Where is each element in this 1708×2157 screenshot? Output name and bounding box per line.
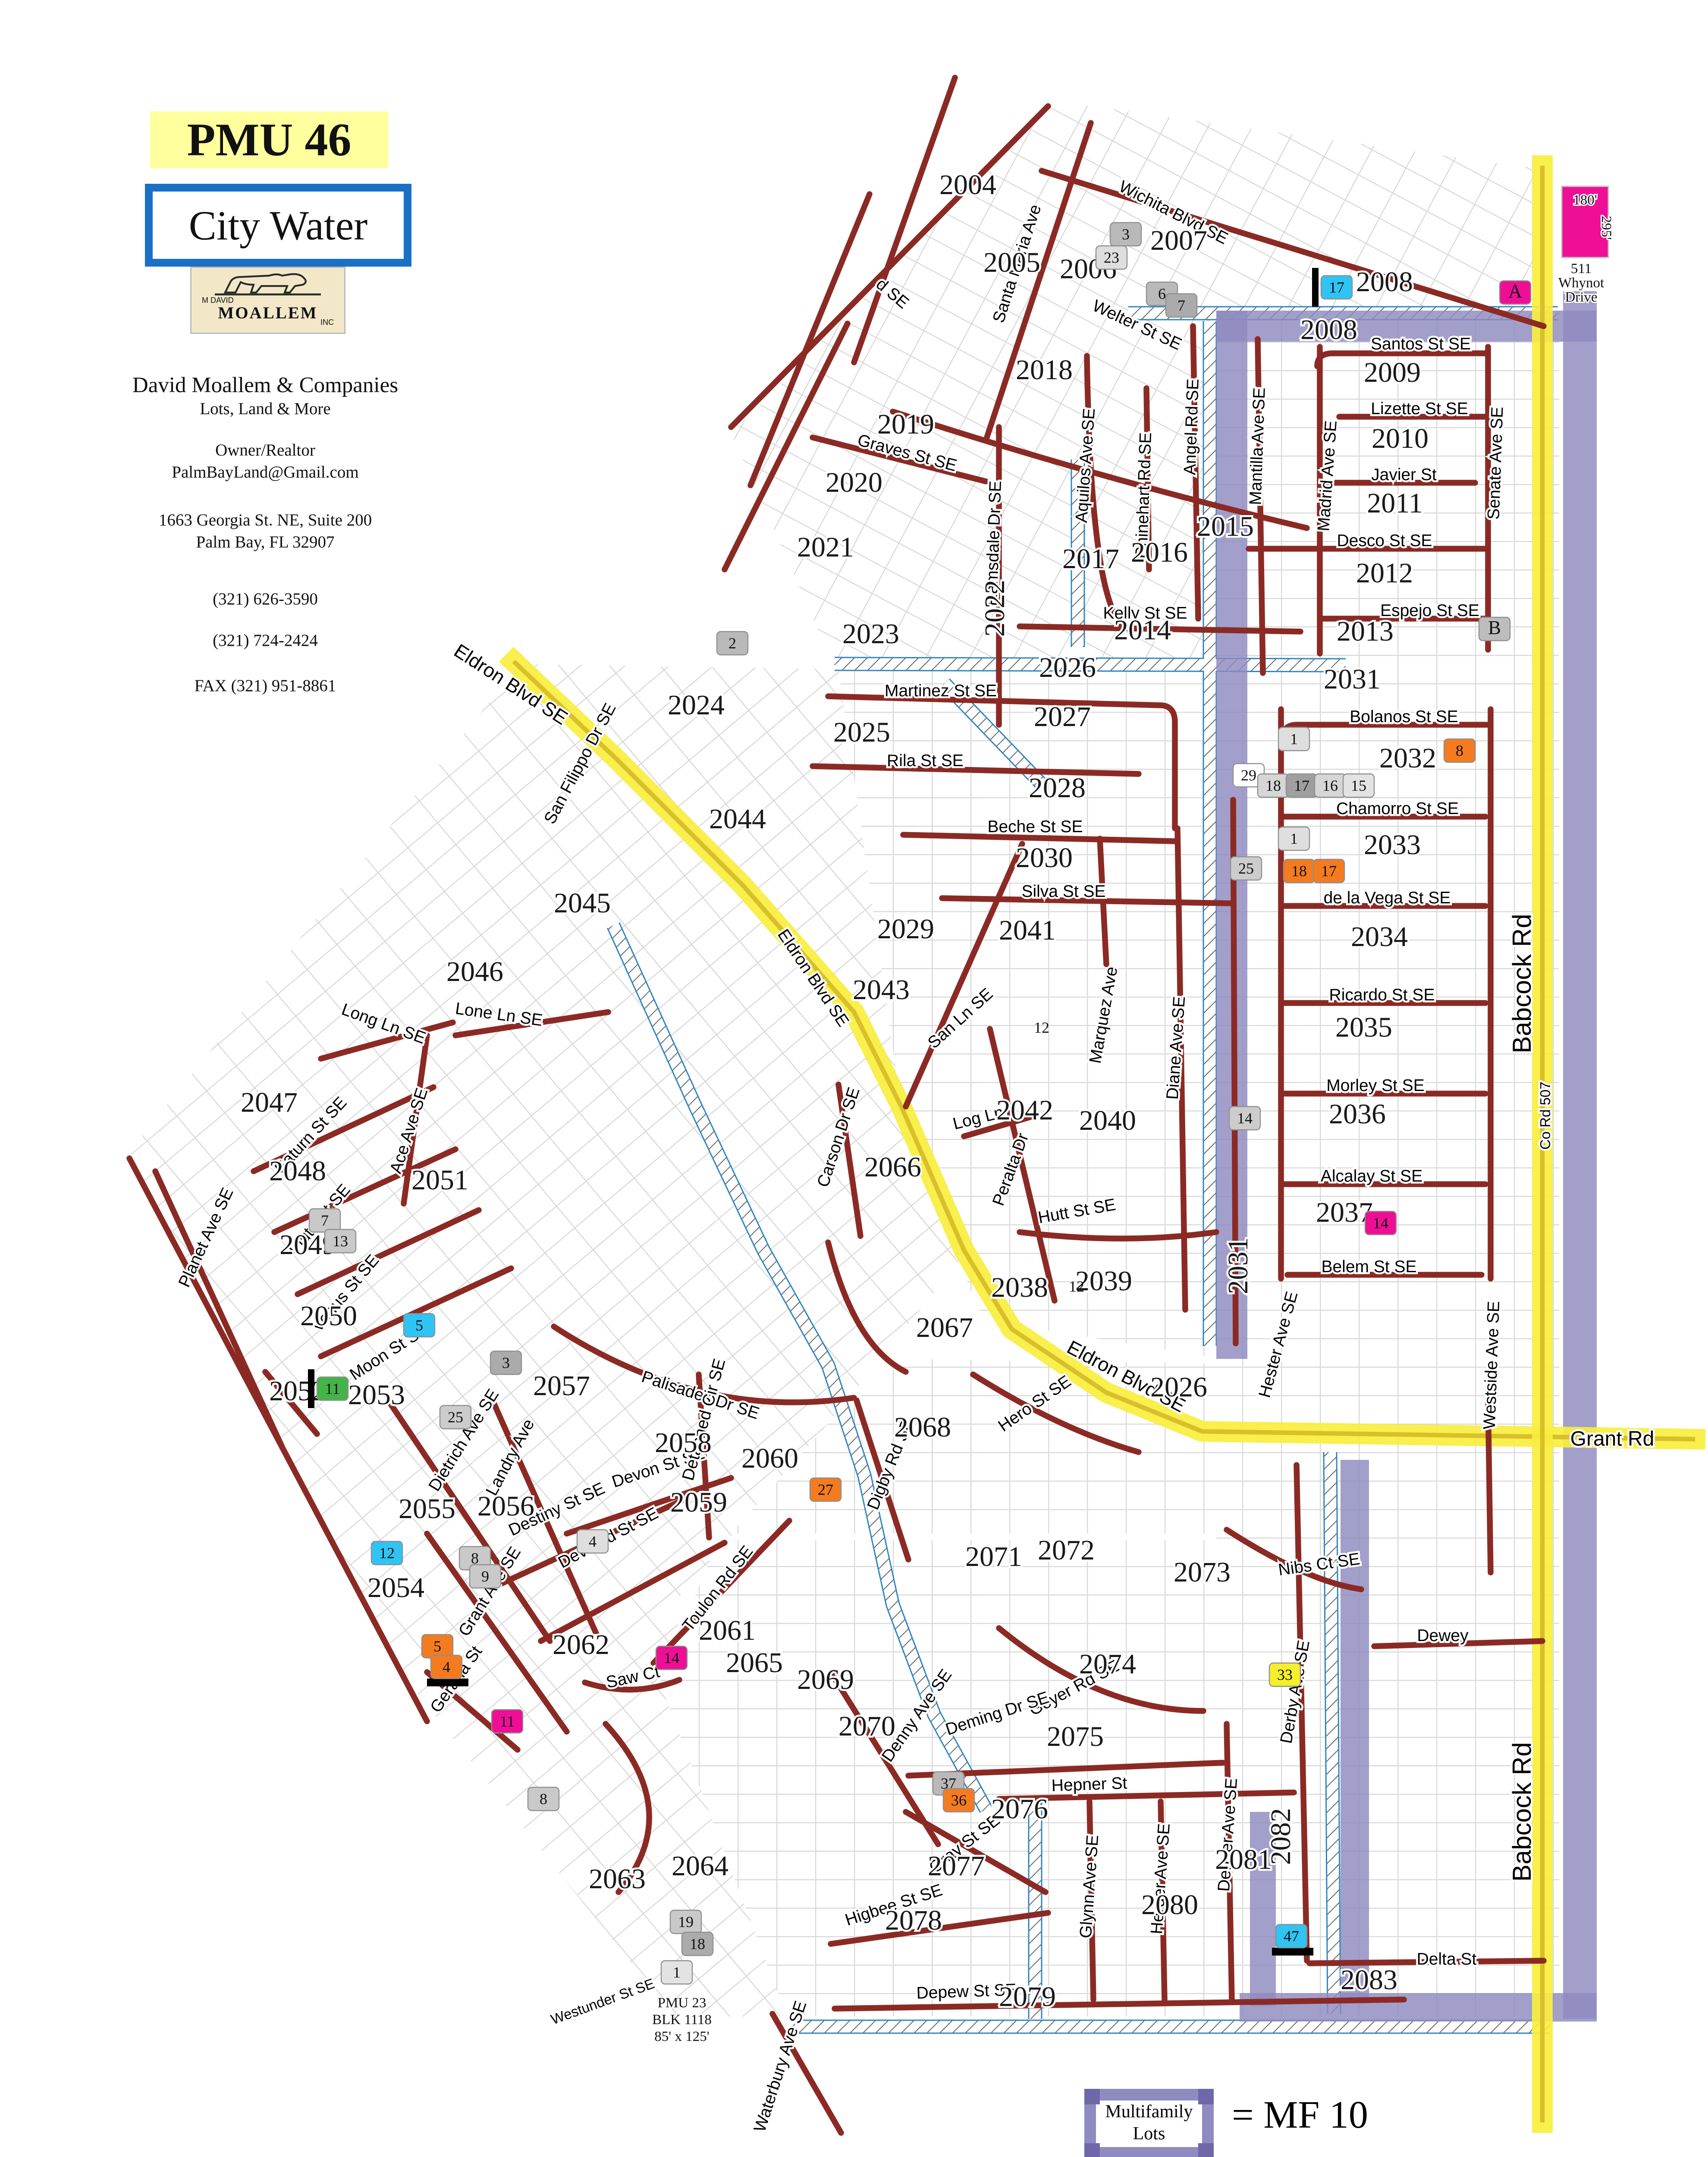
- section-number: 2067: [916, 1312, 973, 1343]
- svg-text:7: 7: [321, 1212, 329, 1229]
- svg-text:8: 8: [1456, 742, 1463, 759]
- section-number: 2031: [1222, 1237, 1254, 1294]
- svg-text:15: 15: [1351, 777, 1366, 794]
- lot-marker: 8: [1444, 739, 1475, 762]
- lot-marker: 14: [1365, 1211, 1396, 1235]
- svg-text:29: 29: [1241, 767, 1256, 784]
- svg-text:27: 27: [818, 1481, 833, 1498]
- svg-text:1: 1: [1290, 730, 1298, 748]
- section-number: 2063: [589, 1863, 646, 1895]
- section-number: 2043: [853, 974, 910, 1006]
- section-number: 2076: [991, 1793, 1048, 1825]
- lot-marker: 27: [810, 1478, 841, 1501]
- section-number: 2030: [1016, 842, 1073, 874]
- section-number: 2041: [999, 915, 1056, 946]
- svg-text:14: 14: [1237, 1110, 1253, 1127]
- logo-brand: MOALLEM: [192, 305, 344, 320]
- svg-text:3: 3: [502, 1354, 510, 1371]
- lot-marker: 7: [309, 1209, 340, 1232]
- section-number: 2027: [1034, 701, 1091, 733]
- section-number: 2078: [885, 1905, 942, 1936]
- section-number: 2026: [1039, 652, 1096, 683]
- lot-marker: 15: [1343, 774, 1374, 797]
- street-label: Alcalay St SE: [1321, 1167, 1422, 1185]
- section-number: 2005: [983, 247, 1040, 278]
- section-number: 2058: [655, 1427, 712, 1459]
- section-number: 2054: [367, 1572, 424, 1604]
- street-label: Co Rd 507: [1537, 1082, 1553, 1150]
- street-label: Grant Rd: [1570, 1428, 1655, 1450]
- legend-swatch-line2: Lots: [1096, 2124, 1202, 2146]
- lot-marker: 18: [1258, 774, 1289, 797]
- lot-marker: 36: [943, 1789, 974, 1812]
- section-number: 2013: [1337, 616, 1394, 647]
- section-number: 2055: [399, 1493, 455, 1525]
- street-label: Beche St SE: [987, 818, 1083, 836]
- svg-text:4: 4: [589, 1533, 597, 1550]
- street-label: Rila St SE: [887, 751, 964, 770]
- svg-text:18: 18: [1291, 862, 1307, 880]
- section-number: 2022: [979, 580, 1011, 637]
- svg-text:8: 8: [540, 1790, 547, 1808]
- section-number: 2072: [1038, 1534, 1095, 1566]
- section-number: 2064: [672, 1850, 728, 1882]
- section-number: 2032: [1379, 742, 1436, 774]
- section-number: 2062: [553, 1629, 609, 1660]
- section-number: 2021: [797, 531, 854, 563]
- lot-marker: 33: [1269, 1663, 1300, 1686]
- section-number: 2019: [877, 409, 934, 440]
- svg-text:11: 11: [325, 1380, 340, 1397]
- svg-text:17: 17: [1294, 777, 1309, 794]
- section-number: 2051: [411, 1164, 468, 1196]
- svg-text:9: 9: [481, 1568, 489, 1585]
- section-number: 2012: [1356, 557, 1413, 589]
- fax-number: FAX (321) 951-8861: [78, 676, 453, 696]
- pmu-title: PMU 46: [150, 111, 388, 168]
- section-number: 2008: [1300, 314, 1357, 346]
- svg-text:B: B: [1488, 617, 1501, 638]
- lot-marker: 25: [1231, 857, 1262, 880]
- lot-marker: 4: [427, 1655, 468, 1686]
- legend-mf10: = MF 10: [1232, 2094, 1368, 2138]
- section-number: 2080: [1141, 1889, 1198, 1921]
- section-number: 2038: [991, 1272, 1048, 1303]
- lot-marker: 18: [1284, 859, 1315, 883]
- svg-text:13: 13: [333, 1233, 348, 1250]
- section-number: 2028: [1029, 772, 1086, 804]
- section-number: 2046: [446, 956, 503, 987]
- lot-marker: 47: [1272, 1924, 1313, 1956]
- section-number: 2068: [894, 1412, 951, 1443]
- svg-text:25: 25: [1238, 860, 1254, 877]
- street-label: Hepner St: [1051, 1774, 1127, 1795]
- lot-marker: 17: [1313, 859, 1344, 883]
- street-label: Senate Ave SE: [1484, 406, 1507, 520]
- street-label: Dewey: [1417, 1626, 1469, 1645]
- section-number: 2004: [939, 169, 996, 201]
- section-number: 2065: [726, 1647, 783, 1679]
- svg-text:18: 18: [1265, 777, 1281, 794]
- street-label: Ricardo St SE: [1329, 986, 1435, 1004]
- svg-text:11: 11: [500, 1713, 515, 1730]
- svg-text:36: 36: [951, 1792, 967, 1809]
- lion-logo-icon: [210, 269, 326, 298]
- svg-text:16: 16: [1322, 777, 1338, 794]
- svg-text:47: 47: [1284, 1927, 1299, 1945]
- lot-marker: 12: [371, 1541, 402, 1565]
- lot-marker: A: [1500, 280, 1531, 304]
- section-number: 2070: [838, 1711, 895, 1742]
- section-number: 2018: [1016, 354, 1073, 386]
- map-note: 180': [1573, 192, 1597, 208]
- lot-marker: 13: [325, 1229, 356, 1253]
- section-number: 2077: [928, 1850, 985, 1882]
- svg-text:14: 14: [664, 1649, 679, 1666]
- section-number: 2047: [241, 1087, 298, 1118]
- street-label: Belem St SE: [1321, 1258, 1416, 1276]
- section-number: 2075: [1047, 1721, 1104, 1752]
- legend-swatch-line1: Multifamily: [1096, 2102, 1202, 2124]
- svg-text:1: 1: [1290, 830, 1298, 847]
- moallem-logo: M DAVID MOALLEM INC: [190, 267, 345, 334]
- street-label: Silva St SE: [1021, 882, 1105, 901]
- section-number: 2011: [1367, 487, 1423, 519]
- lot-marker: 7: [1166, 294, 1197, 317]
- lot-marker: 5: [422, 1635, 453, 1658]
- lot-marker: 1: [1278, 827, 1309, 850]
- svg-text:18: 18: [690, 1935, 705, 1953]
- section-number: 2031: [1324, 663, 1381, 695]
- section-number: 2057: [533, 1370, 590, 1402]
- section-number: 2083: [1341, 1964, 1397, 1996]
- section-number: 2040: [1079, 1105, 1136, 1136]
- section-number: 2034: [1351, 921, 1408, 953]
- svg-text:17: 17: [1329, 279, 1344, 296]
- section-number: 2014: [1114, 614, 1171, 646]
- lot-marker: 16: [1315, 774, 1346, 797]
- svg-text:14: 14: [1373, 1214, 1388, 1232]
- street-label: Delta St: [1417, 1950, 1477, 1968]
- section-number: 2071: [965, 1541, 1022, 1572]
- section-number: 2081: [1215, 1844, 1272, 1875]
- street-label: Angel Rd SE: [1181, 378, 1203, 475]
- section-number: 2016: [1131, 537, 1188, 568]
- svg-text:7: 7: [1177, 297, 1185, 314]
- section-number: 2036: [1329, 1098, 1386, 1130]
- address-line1: 1663 Georgia St. NE, Suite 200: [78, 510, 453, 531]
- section-number: 2061: [699, 1615, 756, 1646]
- section-number: 2050: [300, 1300, 357, 1332]
- company-tagline: Lots, Land & More: [78, 399, 453, 419]
- section-number: 2079: [999, 1981, 1056, 2012]
- lot-marker: 17: [1286, 774, 1317, 797]
- section-number: 2048: [269, 1155, 326, 1187]
- lot-marker: 14: [1229, 1107, 1260, 1130]
- map-note: 511: [1571, 261, 1592, 277]
- section-number: 2056: [477, 1490, 534, 1522]
- lot-marker: 3: [1110, 223, 1141, 246]
- svg-text:A: A: [1508, 280, 1523, 302]
- section-number: 2009: [1364, 357, 1421, 388]
- lot-marker: 1: [661, 1961, 692, 1984]
- svg-text:12: 12: [1034, 1019, 1049, 1036]
- street-label: Babcock Rd: [1507, 1742, 1536, 1882]
- section-number: 2042: [996, 1094, 1053, 1126]
- street-label: Westunder St SE: [549, 1975, 656, 2028]
- street-label: Morley St SE: [1326, 1076, 1425, 1095]
- lot-marker: 1: [1278, 727, 1309, 751]
- city-water-badge: City Water: [145, 184, 411, 267]
- section-number: 2060: [741, 1443, 798, 1474]
- map-note: PMU 23: [658, 1995, 706, 2011]
- svg-text:3: 3: [1122, 226, 1130, 243]
- address-line2: Palm Bay, FL 32907: [78, 532, 453, 553]
- section-number: 2073: [1174, 1556, 1231, 1588]
- phone-primary: (321) 626-3590: [78, 589, 453, 610]
- section-number: 2074: [1079, 1648, 1136, 1680]
- map-note: 85' x 125': [654, 2029, 709, 2044]
- svg-text:12: 12: [1069, 1278, 1084, 1295]
- map-note: BLK 1118: [652, 2012, 712, 2028]
- street-label: Chamorro St SE: [1336, 799, 1459, 818]
- lot-marker: 4: [577, 1530, 608, 1553]
- street-label: Lizette St SE: [1371, 399, 1468, 418]
- lot-marker: 12: [1069, 1278, 1084, 1295]
- svg-text:1: 1: [673, 1964, 681, 1981]
- street-label: de la Vega St SE: [1324, 889, 1451, 907]
- svg-text:2: 2: [728, 635, 736, 652]
- street-label: Bolanos St SE: [1350, 707, 1458, 726]
- svg-text:19: 19: [678, 1913, 694, 1931]
- map-note: Whynot: [1558, 275, 1604, 291]
- lot-marker: 19: [670, 1910, 701, 1934]
- map-note: Drive: [1565, 289, 1597, 305]
- owner-role: Owner/Realtor: [78, 440, 453, 461]
- section-number: 2008: [1356, 266, 1413, 298]
- section-number: 2023: [842, 618, 899, 650]
- street-label: Santos St SE: [1371, 335, 1471, 353]
- svg-text:33: 33: [1277, 1666, 1293, 1683]
- company-name: David Moallem & Companies: [78, 373, 453, 399]
- lot-marker: 12: [1034, 1019, 1049, 1036]
- street-label: Martinez St SE: [885, 682, 997, 700]
- email: PalmBayLand@Gmail.com: [78, 462, 453, 483]
- section-number: 2029: [877, 913, 934, 945]
- section-number: 2017: [1062, 543, 1119, 575]
- lot-marker: 8: [528, 1787, 559, 1811]
- section-number: 2082: [1265, 1808, 1297, 1865]
- section-number: 2025: [833, 717, 890, 748]
- lot-marker: 5: [404, 1314, 435, 1337]
- svg-text:5: 5: [433, 1638, 441, 1655]
- section-number: 2053: [348, 1379, 405, 1411]
- section-number: 2044: [709, 803, 766, 835]
- phone-secondary: (321) 724-2424: [78, 630, 453, 651]
- svg-text:12: 12: [379, 1544, 395, 1562]
- lot-marker: 9: [470, 1565, 501, 1588]
- svg-text:6: 6: [1158, 285, 1166, 302]
- street-label: Desco St SE: [1337, 531, 1432, 550]
- lot-marker: 18: [682, 1932, 713, 1956]
- legend-multifamily-swatch: Multifamily Lots: [1084, 2089, 1214, 2157]
- svg-text:4: 4: [443, 1658, 450, 1676]
- lot-marker: 23: [1096, 246, 1127, 269]
- svg-text:23: 23: [1104, 249, 1119, 266]
- street-label: Babcock Rd: [1507, 914, 1536, 1053]
- section-number: 2069: [797, 1664, 854, 1695]
- section-number: 2035: [1335, 1012, 1392, 1043]
- lot-marker: 2: [717, 632, 748, 655]
- lot-marker: 14: [656, 1646, 687, 1670]
- svg-text:5: 5: [415, 1317, 423, 1334]
- map-note: 295': [1598, 216, 1614, 239]
- section-number: 2024: [668, 689, 725, 721]
- section-number: 2010: [1372, 423, 1429, 454]
- section-number: 2037: [1316, 1197, 1373, 1228]
- section-number: 2033: [1364, 829, 1421, 861]
- street-label: Javier St: [1371, 465, 1437, 484]
- section-number: 2007: [1150, 225, 1207, 256]
- section-number: 2020: [826, 467, 882, 498]
- plat-map-page: Wichita Blvd SESanta Maria AveWelter St …: [0, 0, 1708, 2157]
- lot-marker: 11: [492, 1710, 523, 1733]
- lot-marker: 25: [440, 1406, 471, 1429]
- section-number: 2045: [554, 887, 611, 919]
- street-label: Espejo St SE: [1380, 601, 1479, 620]
- section-number: 2026: [1150, 1371, 1207, 1403]
- svg-text:25: 25: [448, 1409, 463, 1426]
- section-number: 2015: [1197, 511, 1254, 542]
- svg-text:17: 17: [1321, 862, 1337, 880]
- section-number: 2059: [670, 1487, 727, 1518]
- lot-marker: 3: [490, 1351, 521, 1374]
- lot-marker: B: [1479, 617, 1510, 641]
- section-number: 2066: [864, 1151, 921, 1183]
